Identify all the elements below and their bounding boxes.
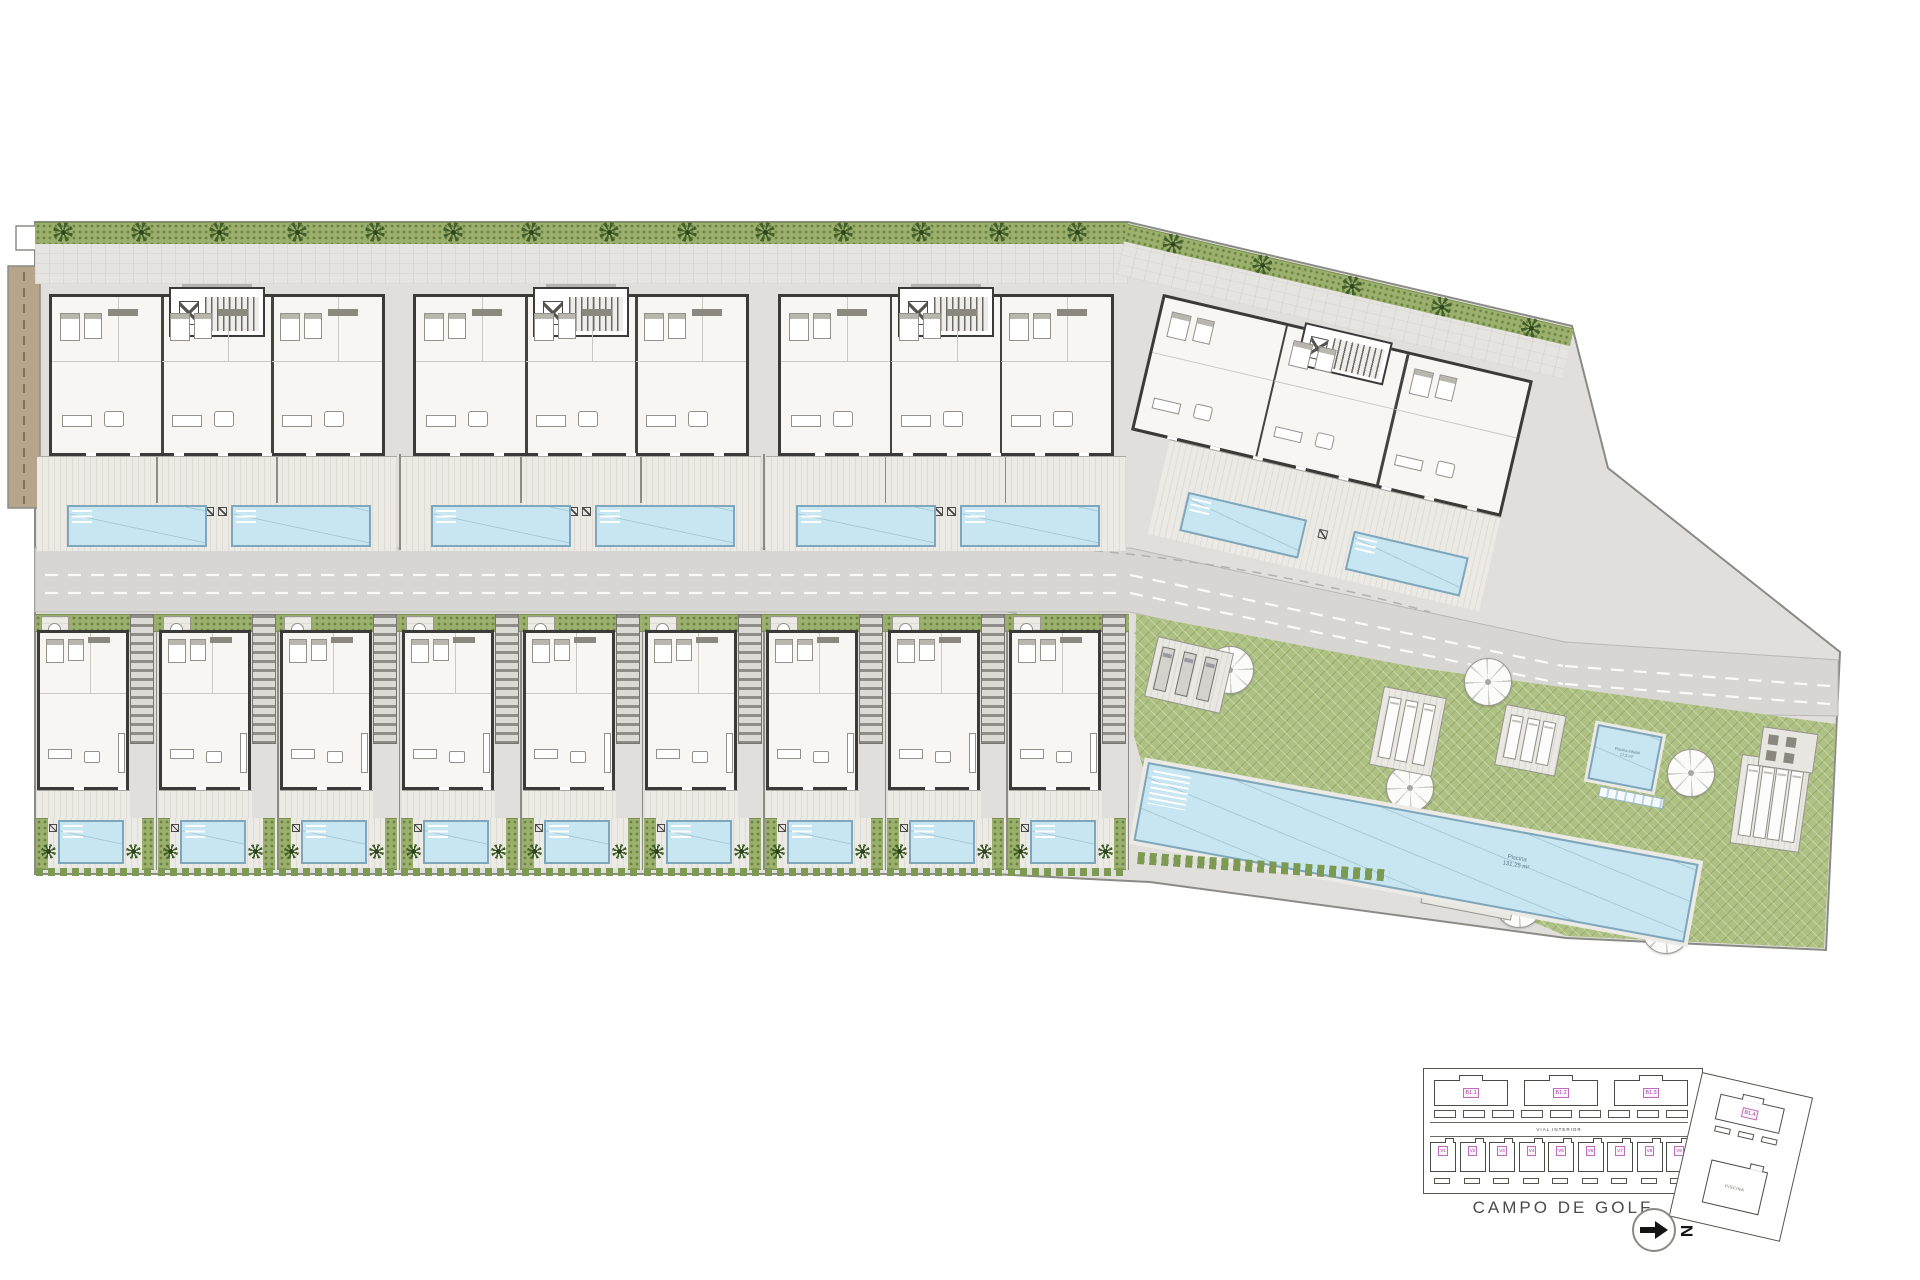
villa-building	[1009, 630, 1101, 790]
pool-steps	[236, 510, 256, 525]
garden-hedge	[385, 818, 397, 870]
wardrobe	[88, 637, 110, 643]
dining-table	[1192, 403, 1213, 422]
apartment-plot	[399, 284, 763, 550]
villa-building	[766, 630, 858, 790]
key-plan-villa: V6	[1578, 1142, 1604, 1172]
room-line	[1001, 361, 1111, 362]
palm-tree-icon	[163, 844, 178, 859]
element	[1593, 1138, 1602, 1143]
element	[1475, 1138, 1484, 1143]
element	[1459, 1075, 1483, 1081]
bed	[1009, 313, 1029, 341]
bbq-unit	[1785, 737, 1796, 748]
wardrobe	[1060, 637, 1082, 643]
villa-building	[37, 630, 129, 790]
pool-steps	[185, 825, 205, 840]
key-plan-terrace	[1434, 1110, 1456, 1118]
drain-grate	[1317, 529, 1328, 540]
palm-tree-icon	[892, 844, 907, 859]
wardrobe	[331, 637, 353, 643]
bed	[84, 313, 102, 339]
terrace-fence	[640, 457, 642, 503]
drain-grate	[778, 824, 786, 832]
terrace-fence	[1005, 457, 1007, 503]
bed	[60, 313, 80, 341]
wardrobe	[939, 637, 961, 643]
wardrobe	[574, 637, 596, 643]
room-line	[228, 297, 229, 361]
palm-tree-icon	[491, 844, 506, 859]
drain-grate	[900, 824, 908, 832]
room-line	[1152, 352, 1274, 381]
unit-divider-wall	[635, 297, 638, 453]
palm-tree-icon	[41, 844, 56, 859]
drain-grate	[1021, 824, 1029, 832]
garden-hedge	[263, 818, 275, 870]
villa-hedge-bottom	[522, 868, 642, 876]
villa-terrace	[159, 790, 252, 819]
apartment-building	[49, 294, 385, 456]
bed	[644, 313, 664, 341]
dining-table	[84, 751, 100, 763]
element	[1549, 1075, 1573, 1081]
unit-divider-wall	[161, 297, 164, 453]
pool-building-label: PISCINA	[1725, 1183, 1745, 1192]
bed	[789, 313, 809, 341]
bed	[448, 313, 466, 339]
villa-garden	[279, 818, 399, 868]
stairs-hatch	[1328, 338, 1385, 379]
villa-building	[280, 630, 372, 790]
room-line	[1012, 693, 1098, 694]
key-plan-villa-pool	[1434, 1178, 1450, 1184]
key-plan-block: B1.1	[1434, 1080, 1508, 1106]
room-line	[702, 297, 703, 361]
villa-garden	[644, 818, 764, 868]
villa-garden	[401, 818, 521, 868]
car-icon	[1196, 656, 1219, 702]
villa-hedge-bottom	[158, 868, 278, 876]
villa-hedge-bottom	[401, 868, 521, 876]
dining-table	[324, 411, 344, 427]
bed	[194, 313, 212, 339]
villa-hedge-bottom	[1008, 868, 1128, 876]
kitchen-bar	[240, 733, 247, 773]
bed	[676, 639, 692, 661]
villa-plot	[278, 614, 400, 876]
wardrobe	[692, 309, 722, 316]
pool-steps	[792, 825, 812, 840]
palm-tree-icon	[131, 222, 151, 242]
element	[1504, 1138, 1513, 1143]
dining-table	[206, 751, 222, 763]
palm-tree-icon	[770, 844, 785, 859]
key-plan-villa: V7	[1607, 1142, 1633, 1172]
bed	[1409, 368, 1434, 398]
wardrobe	[947, 309, 977, 316]
room-line	[118, 297, 119, 361]
apartment-building	[413, 294, 749, 456]
palm-tree-icon	[612, 844, 627, 859]
dining-table	[688, 411, 708, 427]
north-letter: N	[1676, 1225, 1696, 1237]
dining-table	[1053, 411, 1073, 427]
kitchen-bar	[1090, 733, 1097, 773]
palm-tree-icon	[369, 844, 384, 859]
villa-garden	[522, 818, 642, 868]
drain-grate	[414, 824, 422, 832]
villa-building	[888, 630, 980, 790]
unit-divider-wall	[271, 297, 274, 453]
wardrobe	[837, 309, 867, 316]
bed	[899, 313, 919, 341]
villa-hedge-bottom	[887, 868, 1007, 876]
dining-table	[468, 411, 488, 427]
bed	[168, 639, 186, 663]
villa-plot	[521, 614, 643, 876]
wardrobe	[210, 637, 232, 643]
palm-tree-icon	[989, 222, 1009, 242]
palm-tree-icon	[248, 844, 263, 859]
palm-tree-icon	[649, 844, 664, 859]
villa-plot	[157, 614, 279, 876]
key-plan-block: B1.2	[1524, 1080, 1598, 1106]
bed	[919, 639, 935, 661]
villa-pool	[423, 820, 489, 864]
bed	[1435, 374, 1458, 401]
room-line	[405, 693, 491, 694]
dining-table	[943, 411, 963, 427]
villa-plot	[400, 614, 522, 876]
element	[1534, 1138, 1543, 1143]
villa-hedge-bottom	[279, 868, 399, 876]
villa-building	[645, 630, 737, 790]
dining-table	[813, 751, 829, 763]
pool-steps	[1035, 825, 1055, 840]
room-line	[891, 361, 1001, 362]
bed	[411, 639, 429, 663]
palm-tree-icon	[734, 844, 749, 859]
bed	[897, 639, 915, 663]
pool-steps	[1189, 498, 1212, 517]
villa-terrace	[1009, 790, 1102, 819]
key-plan-villa: V4	[1519, 1142, 1545, 1172]
car-icon	[1153, 646, 1176, 692]
drain-grate	[947, 507, 956, 516]
villa-pool	[787, 820, 853, 864]
palm-tree-icon	[855, 844, 870, 859]
key-plan-block: B1.3	[1614, 1080, 1688, 1106]
apartment-plot	[35, 284, 399, 550]
room-line	[526, 693, 612, 694]
sofa	[1020, 749, 1044, 759]
villa-garden	[36, 818, 156, 868]
room-line	[891, 693, 977, 694]
bed	[668, 313, 686, 339]
bed	[532, 639, 550, 663]
parasol-icon	[1667, 749, 1715, 797]
key-plan-villa-pool	[1611, 1178, 1627, 1184]
bed	[433, 639, 449, 661]
villa-building	[523, 630, 615, 790]
plot-fence	[399, 454, 401, 550]
private-pool	[796, 505, 936, 547]
apartment-building	[778, 294, 1114, 456]
pool-steps	[72, 510, 92, 525]
dining-table	[1056, 751, 1072, 763]
palm-tree-icon	[287, 222, 307, 242]
bed	[280, 313, 300, 341]
villa-stairs	[738, 614, 762, 744]
key-plan-terrace	[1637, 1110, 1659, 1118]
garden-hedge	[506, 818, 518, 870]
room-line	[1274, 380, 1396, 409]
site-plan-canvas: Piscina 131,25 m² Piscina infantil 17,5 …	[0, 0, 1920, 1280]
bbq-area	[1757, 726, 1818, 773]
drain-grate	[171, 824, 179, 832]
sofa	[901, 415, 931, 427]
road-label: VIAL INTERIOR	[1536, 1127, 1581, 1132]
room-line	[526, 361, 636, 362]
wardrobe	[696, 637, 718, 643]
key-plan-terrace	[1463, 1110, 1485, 1118]
room-line	[1067, 297, 1068, 361]
block-label: B1.3	[1643, 1088, 1658, 1098]
pool-steps	[671, 825, 691, 840]
villa-stairs	[616, 614, 640, 744]
kitchen-bar	[483, 733, 490, 773]
wing-block-label: B1.4	[1741, 1107, 1758, 1120]
villa-label: V7	[1615, 1146, 1625, 1156]
main-pool-label: Piscina 131,25 m²	[1471, 848, 1562, 879]
villa-terrace	[645, 790, 738, 819]
pool-steps	[1147, 770, 1191, 810]
wardrobe	[453, 637, 475, 643]
dining-table	[570, 751, 586, 763]
palm-tree-icon	[527, 844, 542, 859]
sofa	[172, 415, 202, 427]
palm-tree-icon	[53, 222, 73, 242]
private-pool	[595, 505, 735, 547]
element	[1563, 1138, 1572, 1143]
room-line	[592, 297, 593, 361]
sofa	[282, 415, 312, 427]
villa-label: V2	[1468, 1146, 1478, 1156]
bed	[534, 313, 554, 341]
villa-stairs	[1102, 614, 1126, 744]
room-line	[648, 693, 734, 694]
bed	[797, 639, 813, 661]
key-plan-villa-pool	[1641, 1178, 1657, 1184]
wardrobe	[108, 309, 138, 316]
sofa	[791, 415, 821, 427]
key-plan-terrace	[1550, 1110, 1572, 1118]
key-plan-villa-pool	[1582, 1178, 1598, 1184]
bed	[1033, 313, 1051, 339]
unit-divider-wall	[525, 297, 528, 453]
palm-tree-icon	[1098, 844, 1113, 859]
pool-steps	[436, 510, 456, 525]
bed	[775, 639, 793, 663]
pool-steps	[914, 825, 934, 840]
room-line	[957, 297, 958, 361]
wardrobe	[218, 309, 248, 316]
wardrobe	[582, 309, 612, 316]
villa-hedge-bottom	[765, 868, 885, 876]
element	[1622, 1138, 1631, 1143]
key-plan-road: VIAL INTERIOR	[1430, 1122, 1688, 1137]
villa-hedge-bottom	[644, 868, 764, 876]
villa-pool	[180, 820, 246, 864]
room-line	[162, 693, 248, 694]
sofa	[413, 749, 437, 759]
sofa	[899, 749, 923, 759]
villa-stairs	[373, 614, 397, 744]
drain-grate	[292, 824, 300, 832]
palm-tree-icon	[126, 844, 141, 859]
villa-garden	[887, 818, 1007, 868]
dining-table	[692, 751, 708, 763]
villa-stairs	[859, 614, 883, 744]
bed	[558, 313, 576, 339]
palm-tree-icon	[599, 222, 619, 242]
villa-terrace	[766, 790, 859, 819]
palm-tree-icon	[1067, 222, 1087, 242]
villa-pool	[909, 820, 975, 864]
palm-tree-icon	[833, 222, 853, 242]
villa-terrace	[888, 790, 981, 819]
palm-tree-icon	[755, 222, 775, 242]
sofa	[1273, 426, 1303, 443]
room-line	[162, 361, 272, 362]
bed	[68, 639, 84, 661]
room-line	[636, 361, 746, 362]
villa-stairs	[252, 614, 276, 744]
drain-grate	[582, 507, 591, 516]
bed	[424, 313, 444, 341]
villa-stairs	[130, 614, 154, 744]
key-plan-villa: V2	[1460, 1142, 1486, 1172]
private-pool	[67, 505, 207, 547]
key-plan-terrace	[1492, 1110, 1514, 1118]
key-plan-villa-pool	[1464, 1178, 1480, 1184]
private-pool	[431, 505, 571, 547]
room-line	[482, 297, 483, 361]
villa-pool	[301, 820, 367, 864]
villa-plot	[35, 614, 157, 876]
bed	[304, 313, 322, 339]
palm-tree-icon	[1013, 844, 1028, 859]
north-arrow: N	[1632, 1208, 1676, 1252]
pool-steps	[549, 825, 569, 840]
kitchen-bar	[361, 733, 368, 773]
bed	[813, 313, 831, 339]
key-plan-terrace	[1579, 1110, 1601, 1118]
sun-deck	[1494, 704, 1567, 777]
villa-pool	[666, 820, 732, 864]
villa-terrace	[402, 790, 495, 819]
villa-plot	[764, 614, 886, 876]
sofa	[291, 749, 315, 759]
palm-tree-icon	[209, 222, 229, 242]
bed	[923, 313, 941, 339]
private-pool	[231, 505, 371, 547]
bed	[170, 313, 190, 341]
wardrobe	[472, 309, 502, 316]
room-line	[847, 297, 848, 361]
private-pool	[1345, 531, 1469, 597]
terrace-fence	[520, 457, 522, 503]
pool-steps	[965, 510, 985, 525]
terrace-fence	[885, 457, 887, 503]
dining-table	[327, 751, 343, 763]
terrace	[401, 456, 761, 551]
villa-label: V8	[1645, 1146, 1655, 1156]
villa-label: V5	[1556, 1146, 1566, 1156]
key-plan-villa: V8	[1637, 1142, 1663, 1172]
bbq-unit	[1765, 750, 1776, 761]
villa-building	[159, 630, 251, 790]
key-plan-terrace	[1608, 1110, 1630, 1118]
villa-garden	[158, 818, 278, 868]
sofa	[170, 749, 194, 759]
bed	[1018, 639, 1036, 663]
bed	[311, 639, 327, 661]
garden-hedge	[992, 818, 1004, 870]
garden-hedge	[1114, 818, 1126, 870]
sofa	[536, 415, 566, 427]
room-line	[338, 297, 339, 361]
block-label: B1.2	[1553, 1088, 1568, 1098]
palm-tree-icon	[406, 844, 421, 859]
bed	[1166, 311, 1191, 341]
villa-plot	[1007, 614, 1129, 876]
drain-grate	[218, 507, 227, 516]
palm-tree-icon	[365, 222, 385, 242]
key-plan-terrace	[1666, 1110, 1688, 1118]
villa-label: V3	[1497, 1146, 1507, 1156]
block-label: B1.1	[1463, 1088, 1478, 1098]
bbq-unit	[1768, 734, 1779, 745]
bed	[654, 639, 672, 663]
palm-tree-icon	[521, 222, 541, 242]
kitchen-bar	[969, 733, 976, 773]
pool-steps	[306, 825, 326, 840]
villa-garden	[765, 818, 885, 868]
sofa	[426, 415, 456, 427]
unit-divider-wall	[890, 297, 893, 453]
unit-divider-wall	[1000, 297, 1003, 453]
pool-steps	[600, 510, 620, 525]
car-icon	[1174, 651, 1197, 697]
villa-pool	[1030, 820, 1096, 864]
palm-tree-icon	[284, 844, 299, 859]
drain-grate	[657, 824, 665, 832]
villa-garden	[1008, 818, 1128, 868]
villa-terrace	[37, 790, 130, 819]
pool-steps	[1354, 537, 1377, 556]
room-line	[40, 693, 126, 694]
pool-steps	[801, 510, 821, 525]
kitchen-bar	[726, 733, 733, 773]
villa-label: V1	[1438, 1146, 1448, 1156]
key-plan-villa: V3	[1489, 1142, 1515, 1172]
kitchen-bar	[604, 733, 611, 773]
sofa	[1011, 415, 1041, 427]
room-line	[272, 361, 382, 362]
bed	[1192, 317, 1215, 344]
